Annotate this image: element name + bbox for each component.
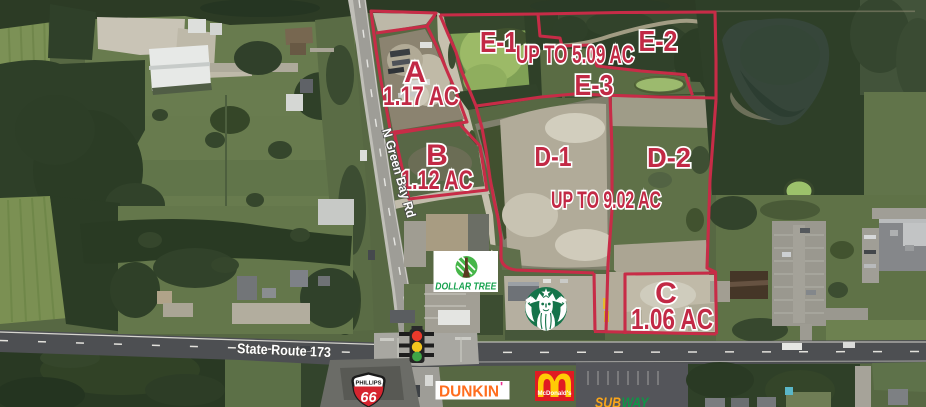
svg-text:UP TO 5.09 AC: UP TO 5.09 AC: [516, 41, 634, 69]
svg-text:': ': [500, 379, 503, 394]
svg-text:DOLLAR TREE: DOLLAR TREE: [435, 281, 497, 293]
svg-text:1.17 AC: 1.17 AC: [383, 81, 459, 111]
svg-text:E-1: E-1: [480, 27, 518, 59]
svg-text:D-1: D-1: [535, 141, 572, 172]
svg-text:D-2: D-2: [647, 142, 691, 173]
svg-text:McDonald's: McDonald's: [538, 390, 572, 397]
svg-text:66: 66: [360, 390, 377, 406]
svg-text:1.06 AC: 1.06 AC: [631, 304, 713, 336]
svg-text:PHILLIPS: PHILLIPS: [356, 381, 383, 387]
svg-text:WAY: WAY: [622, 396, 650, 407]
svg-text:E-2: E-2: [639, 26, 678, 58]
svg-text:UP TO 9.02 AC: UP TO 9.02 AC: [551, 187, 661, 214]
svg-text:DUNKIN: DUNKIN: [439, 384, 499, 401]
svg-text:SUB: SUB: [595, 396, 621, 407]
svg-text:E-3: E-3: [575, 70, 614, 102]
